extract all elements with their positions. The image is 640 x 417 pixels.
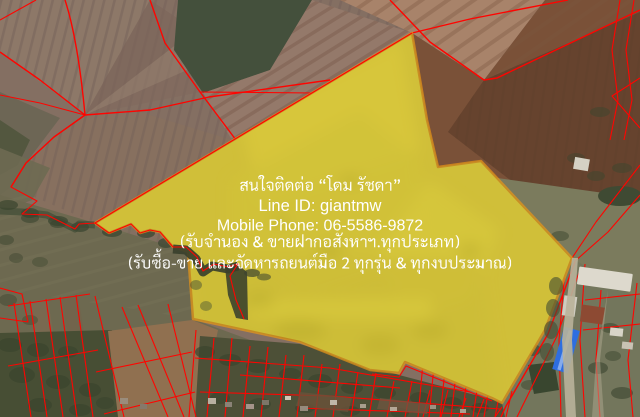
- svg-text:Line ID: giantmw: Line ID: giantmw: [259, 197, 382, 215]
- svg-text:Mobile Phone: 06-5586-9872: Mobile Phone: 06-5586-9872: [217, 218, 423, 235]
